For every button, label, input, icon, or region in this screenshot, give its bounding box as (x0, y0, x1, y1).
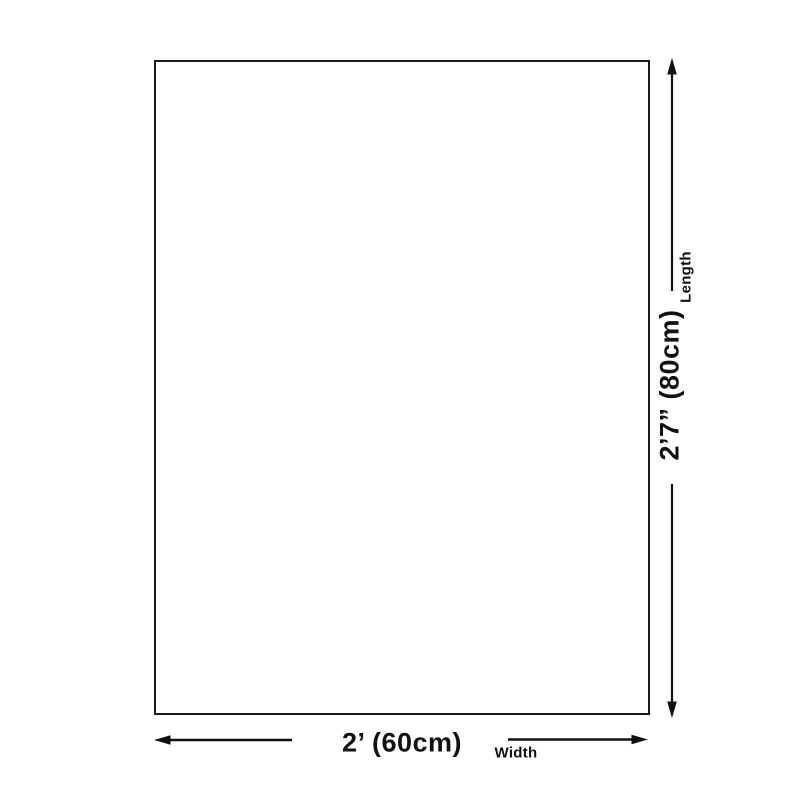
dimension-diagram: 2’7” (80cm) Length 2’ (60cm) Width (0, 0, 800, 800)
width-axis-label: Width (494, 746, 537, 761)
width-value-label: 2’ (60cm) (342, 730, 462, 757)
length-arrow-down-icon (667, 484, 677, 718)
width-arrow-right-icon (508, 735, 648, 745)
width-arrow-left-icon (154, 735, 292, 745)
length-arrow-up-icon (667, 58, 677, 291)
product-outline (154, 60, 650, 715)
length-axis-label: Length (679, 251, 694, 303)
length-value-label: 2’7” (80cm) (657, 309, 684, 460)
